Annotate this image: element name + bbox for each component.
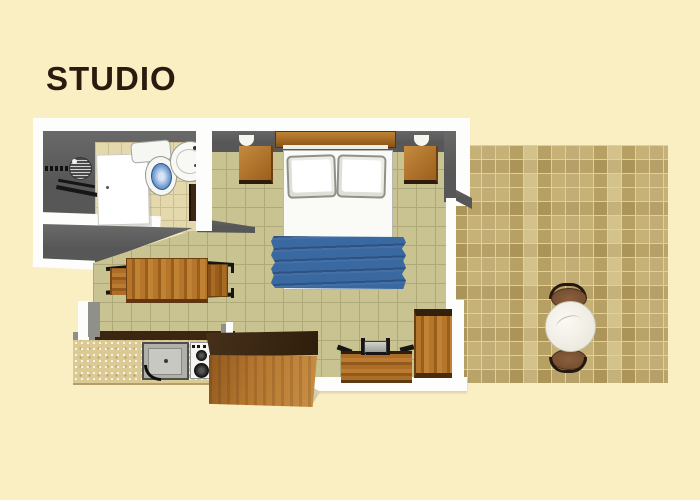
- right-wall: [444, 128, 456, 202]
- terrace-door-jamb: [446, 198, 456, 310]
- dining-chair-right-leg-top: [231, 263, 234, 273]
- pillow-right: [336, 154, 386, 198]
- blue-blanket: [271, 236, 406, 289]
- wall-outline-left: [33, 118, 43, 266]
- wall-divider-bathroom: [196, 120, 212, 231]
- page-title: STUDIO: [46, 60, 177, 98]
- shower-handle-icon: [45, 166, 68, 171]
- shower-head-highlight: [72, 159, 77, 164]
- pillow-left: [286, 154, 336, 199]
- sink-drain: [164, 359, 168, 363]
- stove-burner-large: [194, 363, 209, 378]
- bathroom-door-handle: [106, 186, 109, 189]
- island-cabinet-grain: [209, 355, 317, 407]
- wall-outline-top: [33, 118, 470, 131]
- desk: [341, 351, 412, 383]
- island-cabinet-top: [206, 331, 318, 357]
- stove-burner-small: [196, 350, 207, 361]
- stove-knob-3: [203, 345, 206, 348]
- stove-knob-1: [192, 345, 195, 348]
- headboard-lip: [283, 145, 388, 149]
- stove-knob-2: [197, 345, 200, 348]
- dining-table: [126, 258, 208, 303]
- tv-stand-base: [366, 352, 386, 355]
- nightstand-left: [239, 146, 273, 184]
- dining-chair-right-leg-bottom: [231, 288, 234, 298]
- tall-cabinet: [414, 309, 452, 378]
- bathroom-door: [96, 153, 150, 225]
- nightstand-right: [404, 146, 438, 184]
- counter-end-cap-gray: [88, 302, 100, 337]
- floorplan: STUDIO: [0, 0, 700, 500]
